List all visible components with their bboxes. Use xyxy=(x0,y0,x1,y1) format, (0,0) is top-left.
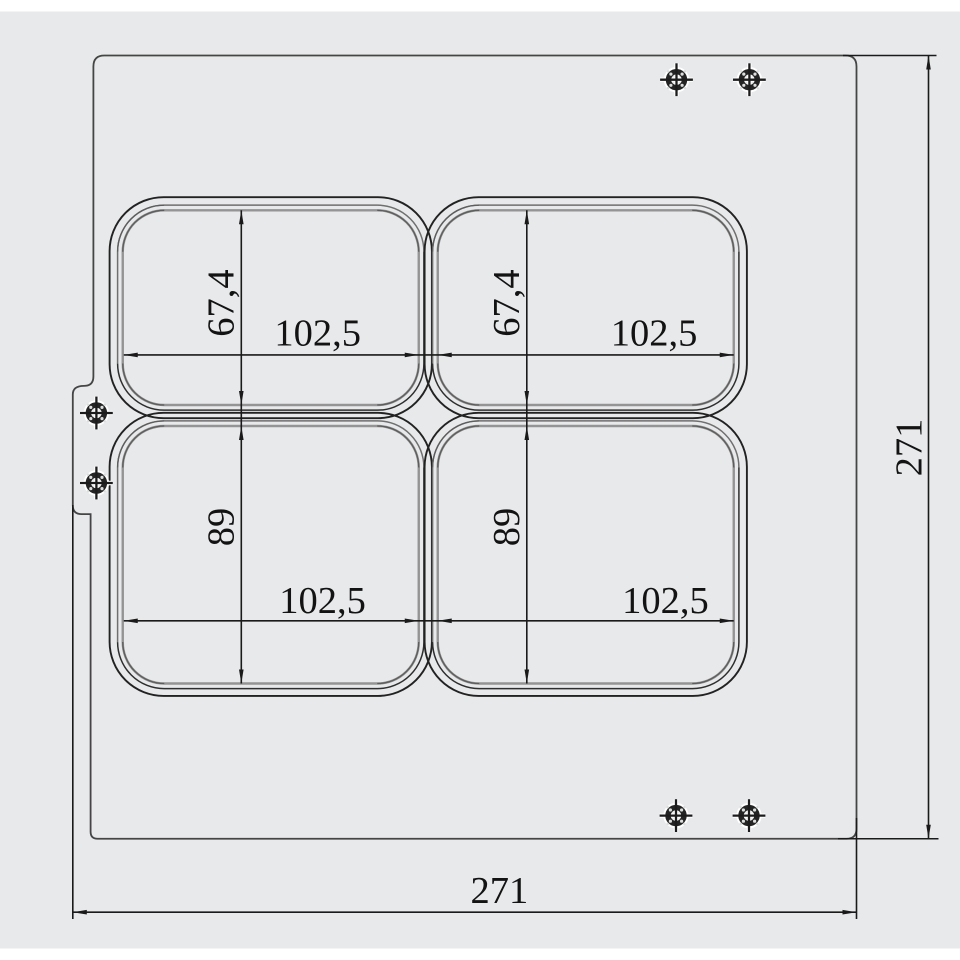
svg-text:271: 271 xyxy=(889,419,931,477)
svg-text:271: 271 xyxy=(471,870,529,912)
svg-text:102,5: 102,5 xyxy=(274,312,361,354)
svg-text:67,4: 67,4 xyxy=(486,269,528,336)
svg-text:89: 89 xyxy=(486,508,528,547)
svg-text:67,4: 67,4 xyxy=(200,269,242,336)
svg-text:102,5: 102,5 xyxy=(622,580,709,622)
svg-text:89: 89 xyxy=(200,508,242,547)
svg-text:102,5: 102,5 xyxy=(611,312,698,354)
svg-text:102,5: 102,5 xyxy=(279,580,366,622)
